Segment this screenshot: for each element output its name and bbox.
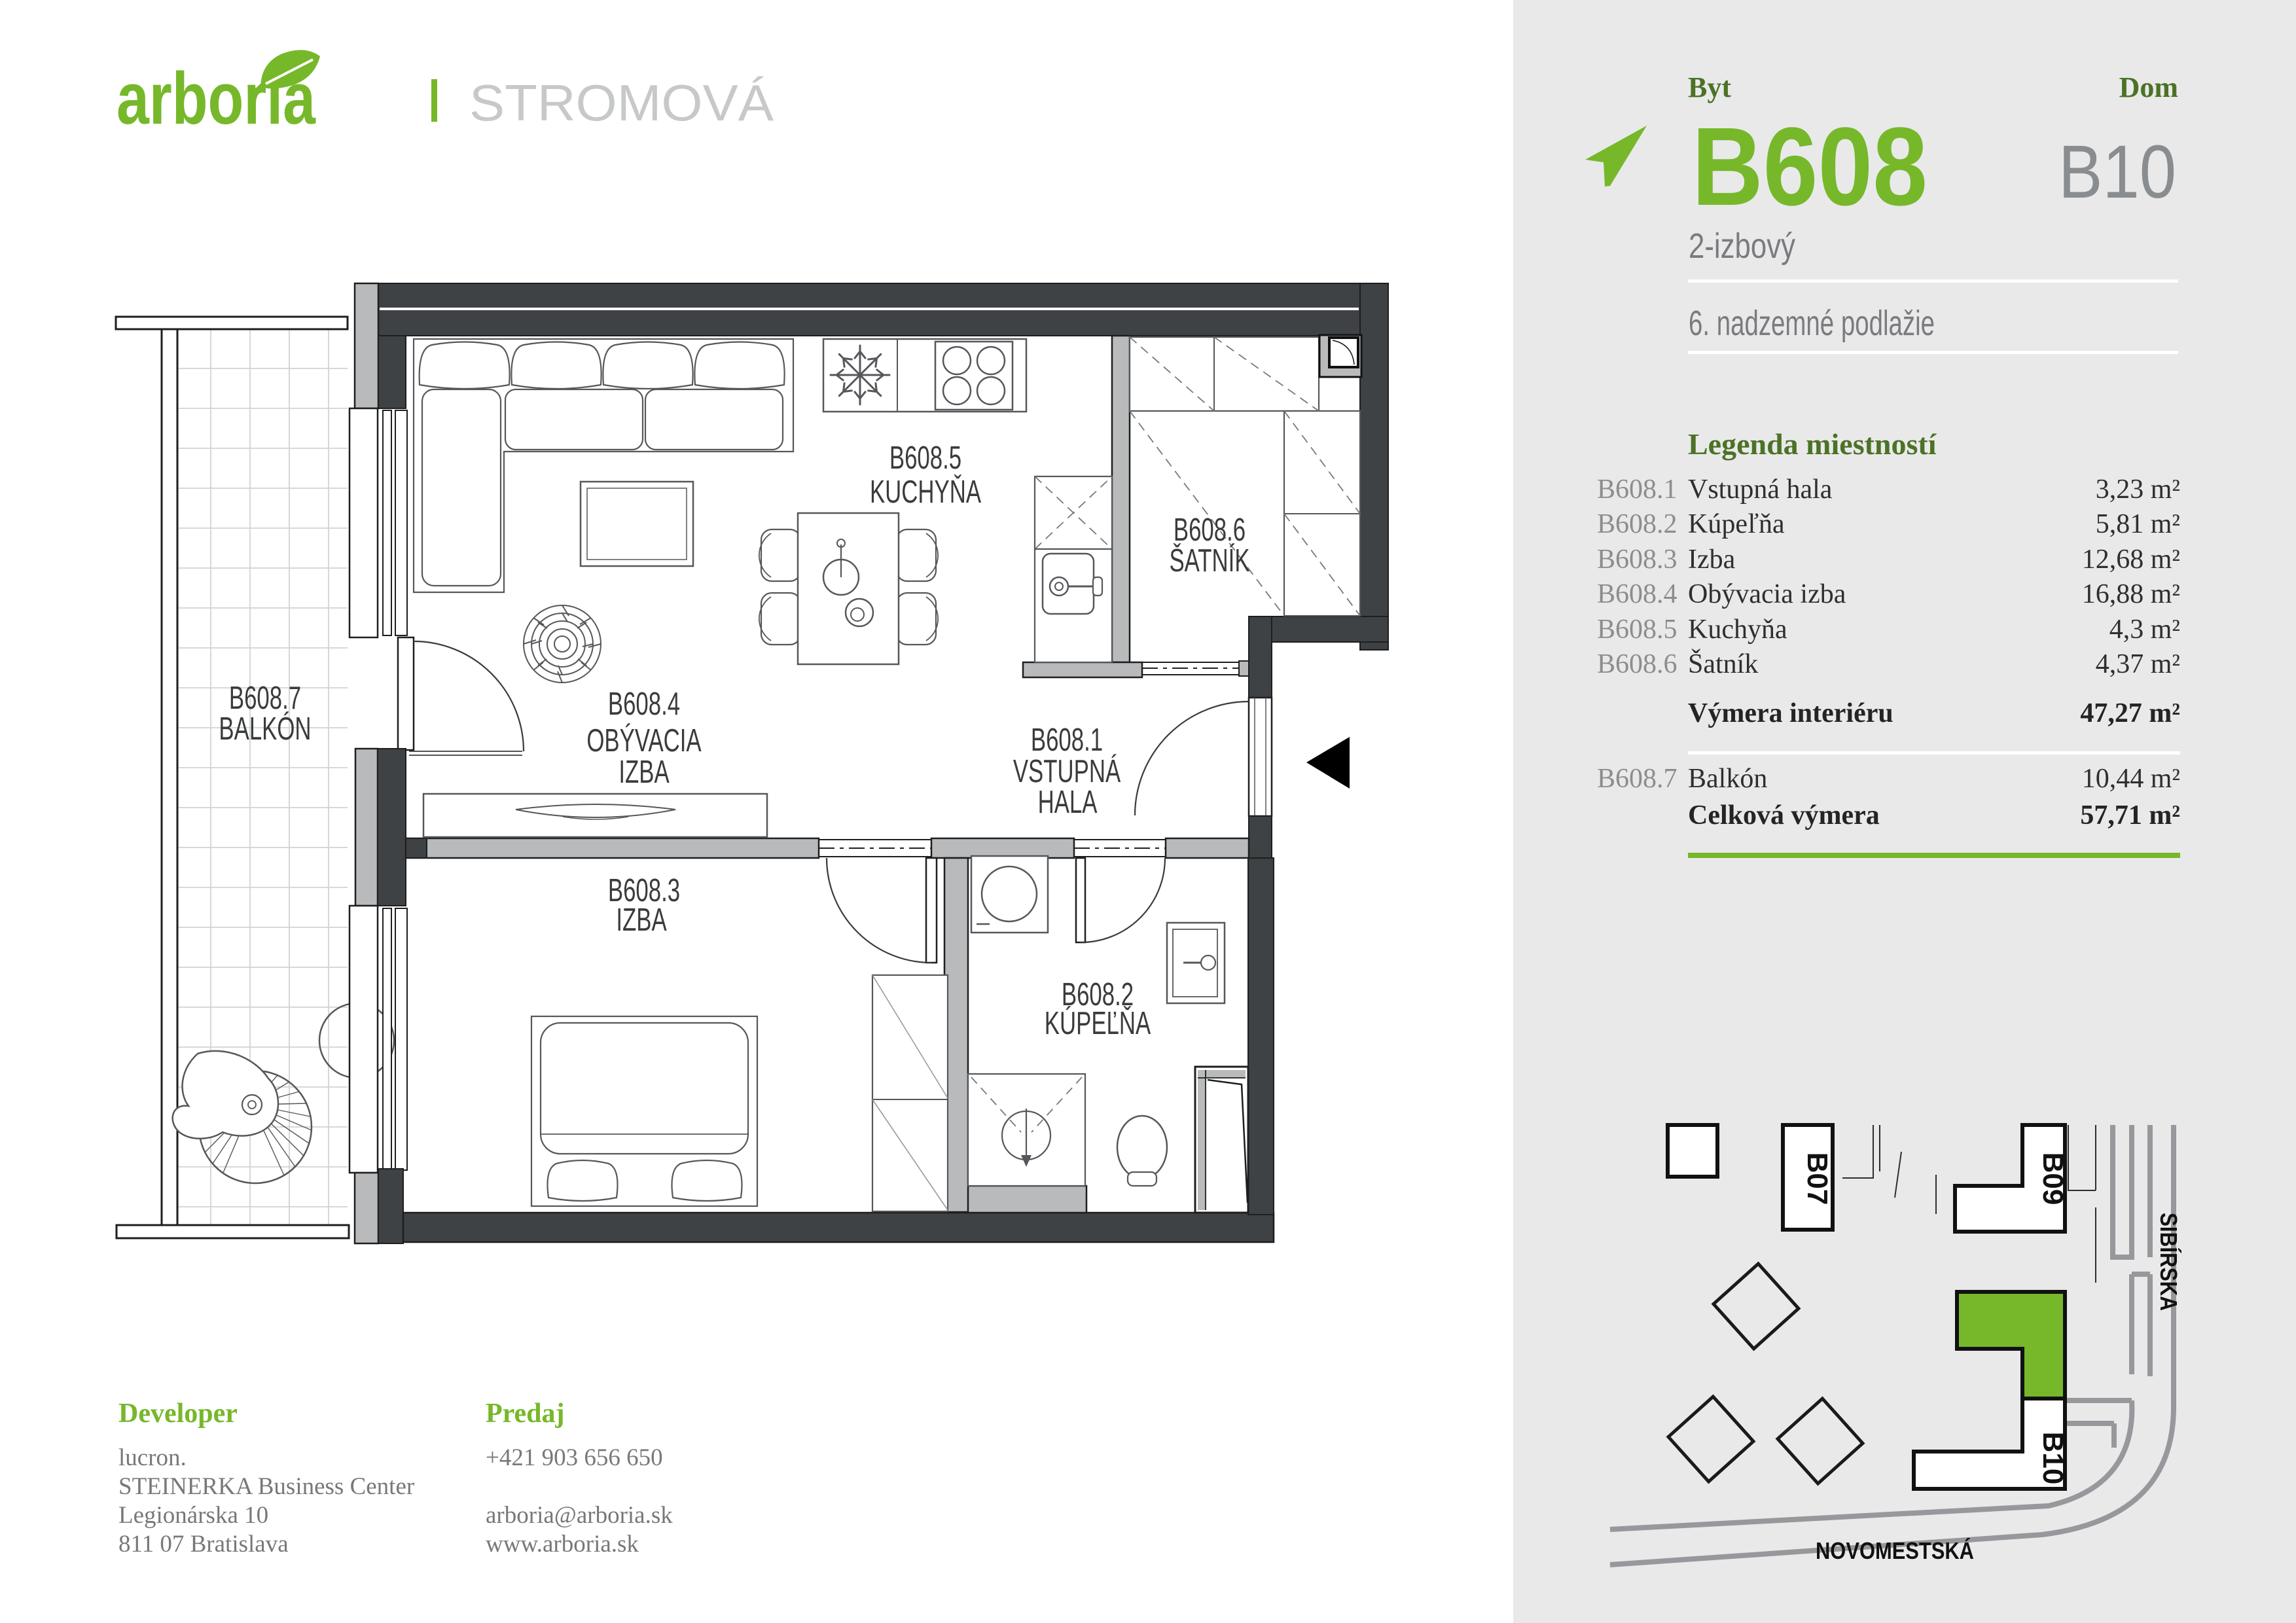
svg-text:BALKÓN: BALKÓN <box>219 711 311 747</box>
svg-text:B07: B07 <box>1801 1152 1833 1205</box>
svg-text:B608: B608 <box>1692 105 1928 223</box>
svg-text:B608.4: B608.4 <box>608 687 680 722</box>
svg-text:KÚPEĽŇA: KÚPEĽŇA <box>1045 1005 1151 1041</box>
svg-text:IZBA: IZBA <box>619 755 670 790</box>
svg-text:KUCHYŇA: KUCHYŇA <box>870 474 982 510</box>
svg-text:ŠATNÍK: ŠATNÍK <box>1169 543 1249 579</box>
svg-text:SIBÍRSKA: SIBÍRSKA <box>2155 1213 2182 1311</box>
svg-text:OBÝVACIA: OBÝVACIA <box>586 723 702 758</box>
svg-text:HALA: HALA <box>1038 785 1098 820</box>
svg-text:B608.1: B608.1 <box>1031 722 1103 758</box>
svg-text:B608.5: B608.5 <box>889 440 961 476</box>
svg-text:STROMOVÁ: STROMOVÁ <box>469 74 774 132</box>
svg-text:6. nadzemné podlažie: 6. nadzemné podlažie <box>1689 304 1935 343</box>
svg-text:B09: B09 <box>2037 1152 2069 1205</box>
svg-text:B10: B10 <box>2058 130 2176 214</box>
svg-text:2-izbový: 2-izbový <box>1689 226 1795 266</box>
svg-text:B10: B10 <box>2037 1432 2069 1485</box>
svg-text:NOVOMESTSKÁ: NOVOMESTSKÁ <box>1816 1537 1974 1564</box>
svg-text:IZBA: IZBA <box>616 902 667 938</box>
